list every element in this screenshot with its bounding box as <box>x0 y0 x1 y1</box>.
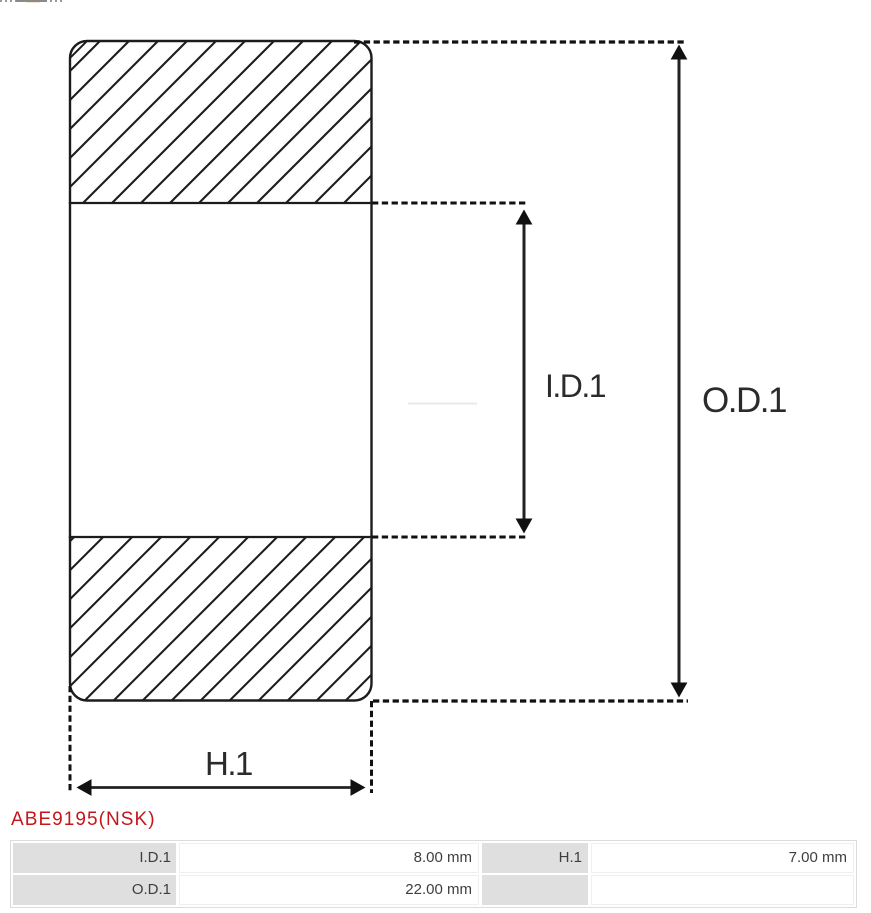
svg-text:I.D.1: I.D.1 <box>545 368 606 404</box>
svg-text:O.D.1: O.D.1 <box>702 381 786 420</box>
svg-text:H.1: H.1 <box>205 745 252 782</box>
